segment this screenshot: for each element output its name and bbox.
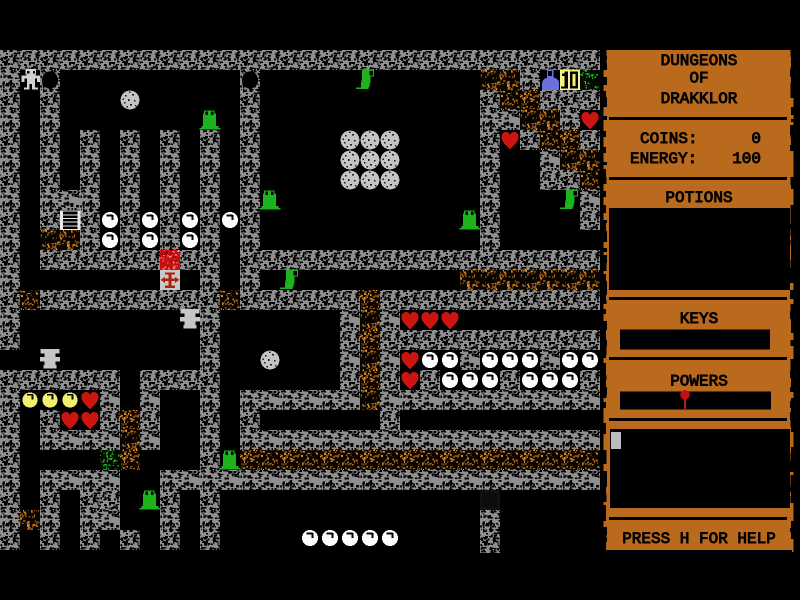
- svg-text:DUNGEONS: DUNGEONS: [661, 52, 738, 70]
- svg-text:POTIONS: POTIONS: [665, 189, 732, 207]
- svg-text:DRAKKLOR: DRAKKLOR: [661, 90, 738, 108]
- svg-text:100: 100: [732, 150, 761, 168]
- svg-text:KEYS: KEYS: [680, 310, 718, 328]
- svg-text:PRESS H FOR HELP: PRESS H FOR HELP: [622, 530, 776, 548]
- svg-text:OF: OF: [689, 70, 708, 88]
- svg-text:ENERGY:: ENERGY:: [630, 150, 697, 168]
- svg-text:POWERS: POWERS: [670, 373, 728, 391]
- svg-text:0: 0: [751, 130, 761, 148]
- svg-text:COINS:: COINS:: [640, 130, 698, 148]
